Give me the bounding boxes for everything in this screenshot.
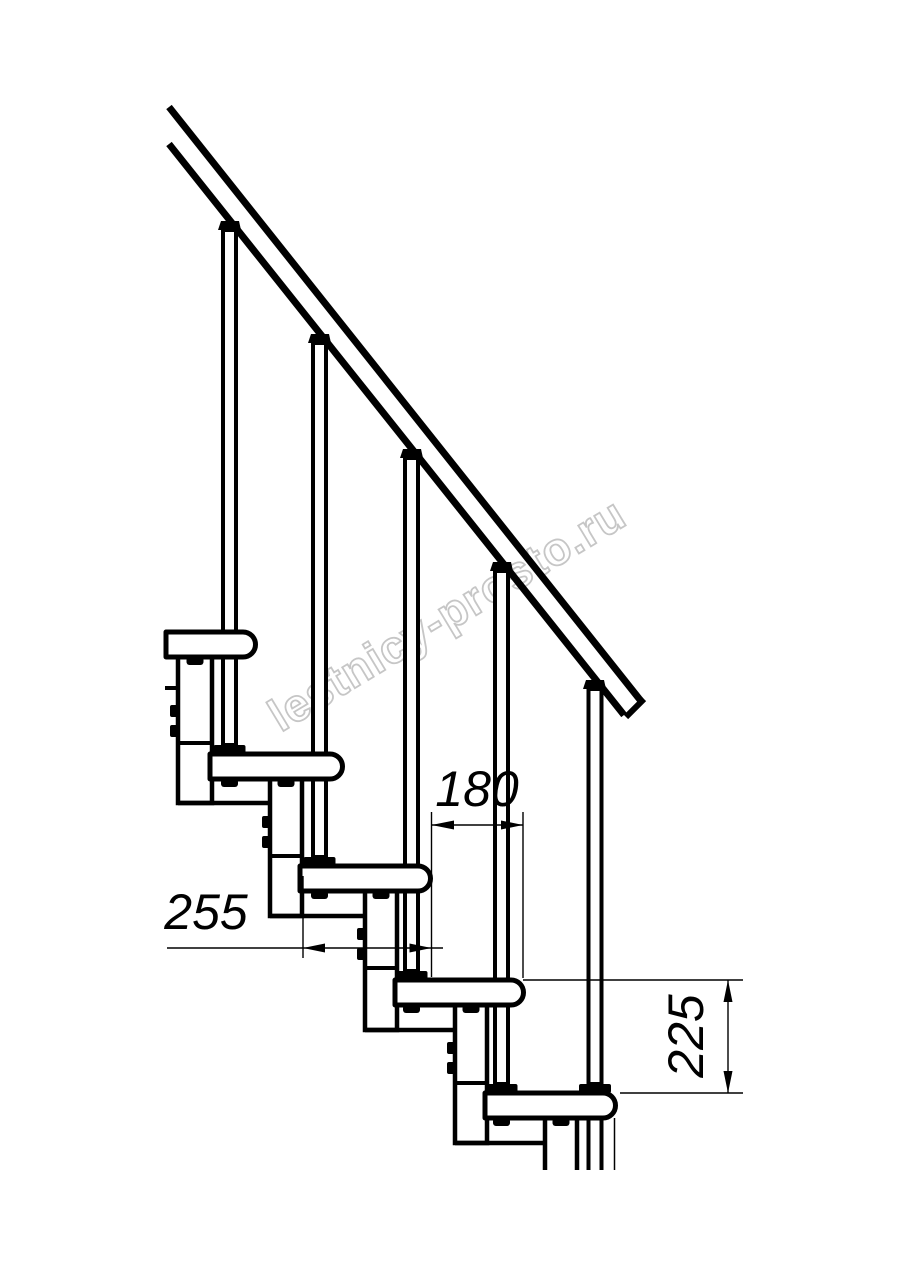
clamp-tab <box>447 1062 456 1074</box>
support-module-box <box>178 657 212 803</box>
tread <box>485 1093 616 1118</box>
clamp-tab <box>357 948 366 960</box>
baluster-foot <box>396 971 428 980</box>
arrowhead <box>432 821 455 830</box>
bolt <box>278 779 295 787</box>
tread <box>395 980 523 1005</box>
baluster-foot <box>579 1084 611 1093</box>
bolt <box>553 1118 570 1126</box>
support-module-box <box>365 891 397 1030</box>
drawing-canvas: lestnicy-prosto.ru <box>0 0 914 1280</box>
clamp-tab <box>170 725 179 737</box>
baluster <box>223 230 236 745</box>
arrowhead <box>724 1071 733 1093</box>
support-module-box <box>455 1005 487 1143</box>
bolt <box>311 891 328 899</box>
dimension-step-rise: 225 <box>523 980 743 1093</box>
dimension-label-depth: 255 <box>163 884 248 940</box>
baluster <box>589 689 602 1084</box>
clamp-tab <box>357 928 366 940</box>
dimension-label-rise: 225 <box>658 994 714 1079</box>
clamp-tab <box>262 816 271 828</box>
arrowhead <box>410 944 432 953</box>
baluster-foot <box>304 857 336 866</box>
baluster <box>405 458 418 971</box>
staircase-technical-drawing: lestnicy-prosto.ru <box>0 0 914 1280</box>
clamp-tab <box>447 1042 456 1054</box>
clamp-tab <box>170 705 179 717</box>
arrowhead <box>724 980 733 1002</box>
arrowhead <box>303 944 325 953</box>
bolt <box>463 1005 480 1013</box>
tread <box>210 754 343 779</box>
bolt <box>187 657 204 665</box>
bolt <box>493 1118 510 1126</box>
bolt <box>221 779 238 787</box>
handrail-end-cap <box>626 699 644 717</box>
tread <box>300 866 430 891</box>
baluster-foot <box>486 1084 518 1093</box>
bolt <box>403 1005 420 1013</box>
tread <box>166 632 255 657</box>
dimension-label-run: 180 <box>435 761 519 817</box>
clamp-tab <box>262 836 271 848</box>
support-module-box <box>270 779 302 916</box>
arrowhead <box>501 821 523 830</box>
bolt <box>373 891 390 899</box>
baluster-foot <box>214 745 246 754</box>
